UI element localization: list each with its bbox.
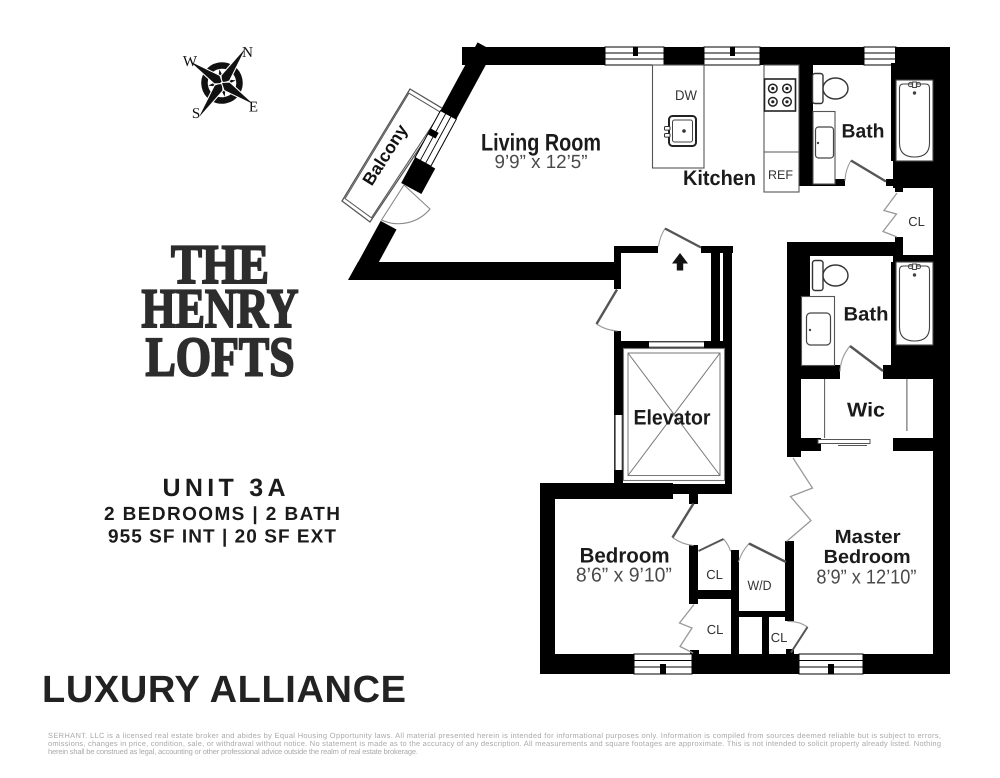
svg-text:Master: Master <box>835 527 902 548</box>
svg-text:955 SF INT | 20 SF EXT: 955 SF INT | 20 SF EXT <box>108 527 336 548</box>
svg-text:8’9” x 12’10”: 8’9” x 12’10” <box>816 567 916 589</box>
svg-text:W: W <box>183 54 198 70</box>
svg-text:CL: CL <box>707 622 724 637</box>
svg-text:E: E <box>249 100 258 116</box>
svg-text:Wic: Wic <box>847 400 885 422</box>
svg-text:Kitchen: Kitchen <box>683 167 756 190</box>
svg-text:Bath: Bath <box>844 304 889 326</box>
svg-text:Elevator: Elevator <box>634 407 711 430</box>
svg-text:Bath: Bath <box>842 121 885 143</box>
svg-text:N: N <box>242 45 253 61</box>
svg-text:CL: CL <box>771 630 788 645</box>
svg-text:2 BEDROOMS | 2 BATH: 2 BEDROOMS | 2 BATH <box>104 504 340 525</box>
svg-text:8’6” x 9’10”: 8’6” x 9’10” <box>576 565 672 587</box>
svg-text:CL: CL <box>706 567 723 582</box>
svg-text:DW: DW <box>675 87 698 103</box>
svg-text:S: S <box>192 106 200 122</box>
svg-text:LUXURY ALLIANCE: LUXURY ALLIANCE <box>42 669 406 711</box>
svg-text:herein shall be construed as l: herein shall be construed as legal, acco… <box>48 747 418 756</box>
svg-text:W/D: W/D <box>748 578 772 593</box>
svg-text:LOFTS: LOFTS <box>146 327 295 389</box>
svg-text:9’9” x 12’5”: 9’9” x 12’5” <box>495 152 588 173</box>
svg-text:REF: REF <box>768 168 793 182</box>
svg-text:CL: CL <box>908 214 925 229</box>
svg-text:Bedroom: Bedroom <box>824 547 911 568</box>
